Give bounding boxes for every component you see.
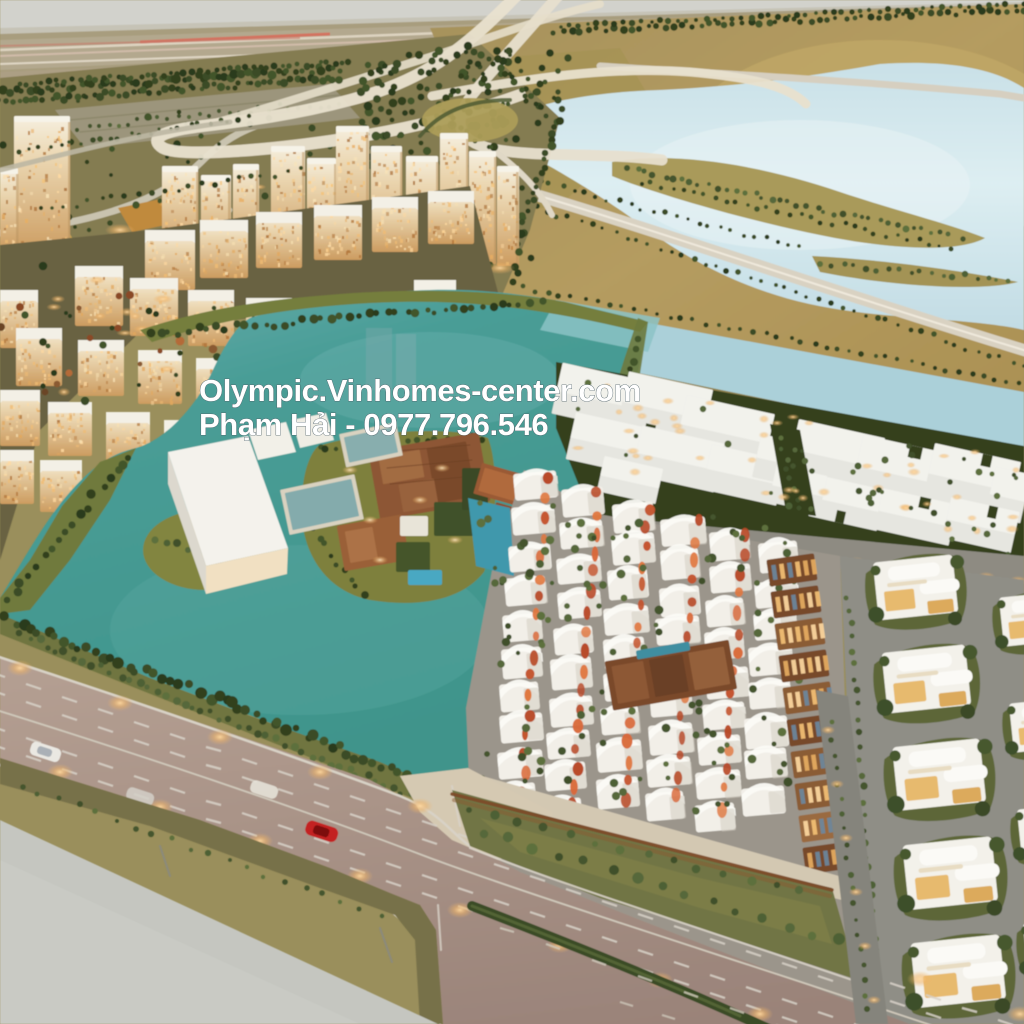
svg-text:Phạm Hải - 0977.796.546: Phạm Hải - 0977.796.546 (199, 407, 548, 442)
svg-text:Olympic.Vinhomes-center.com: Olympic.Vinhomes-center.com (199, 373, 641, 408)
